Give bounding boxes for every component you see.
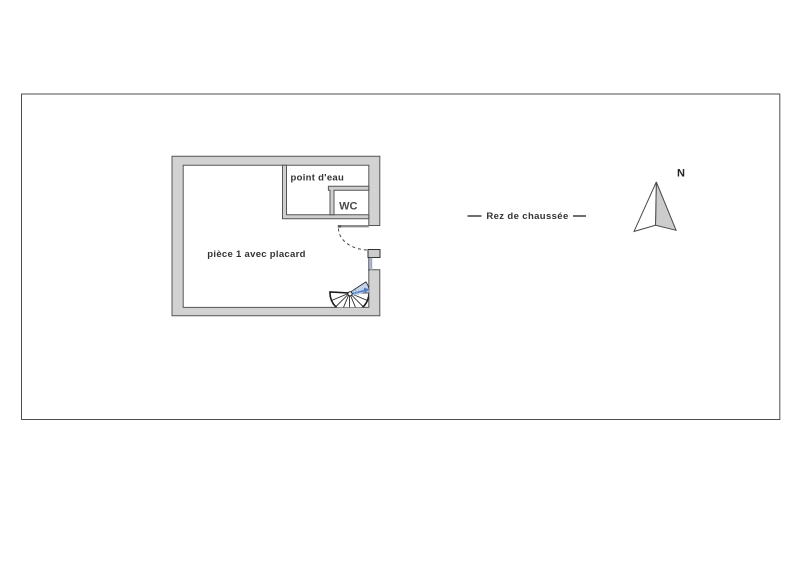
svg-text:pièce 1 avec placard: pièce 1 avec placard bbox=[207, 249, 305, 260]
svg-text:Rez de chaussée: Rez de chaussée bbox=[486, 211, 568, 222]
svg-text:WC: WC bbox=[339, 200, 357, 212]
svg-text:N: N bbox=[677, 168, 685, 180]
svg-text:point d'eau: point d'eau bbox=[291, 172, 345, 183]
